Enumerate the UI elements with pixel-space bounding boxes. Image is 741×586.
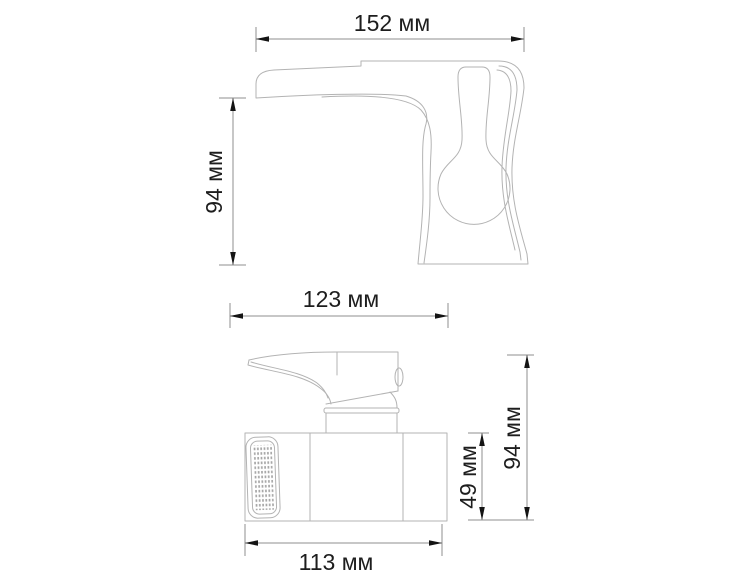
dim-side-height-label: 94 мм: [201, 150, 227, 214]
dim-front-body-height-label: 49 мм: [455, 445, 481, 509]
side-view-front-inner-line: [322, 96, 431, 263]
dim-front-overall-height-label: 94 мм: [499, 406, 525, 470]
front-view-lever-top-edge: [249, 352, 337, 360]
front-view: [245, 352, 447, 521]
front-view-housing-side-cap: [395, 368, 403, 386]
front-view-housing-base-curve: [390, 392, 397, 408]
dim-front-body-height: 49 мм: [455, 433, 489, 520]
dim-side-width-label: 152 мм: [354, 10, 430, 36]
dim-front-base-width-label: 113 мм: [299, 549, 374, 575]
dim-side-height: 94 мм: [201, 98, 246, 265]
front-view-housing-top-right: [337, 352, 398, 391]
dim-side-width: 152 мм: [256, 10, 524, 52]
faucet-dimension-drawing: 152 мм 94 мм 123 мм 49 мм 94 мм: [0, 0, 741, 586]
front-view-housing-bottom-edge: [326, 391, 398, 404]
side-view: [256, 61, 528, 264]
front-view-flange: [324, 408, 399, 413]
side-view-body-outline: [256, 61, 528, 264]
front-view-lever-inner-edge: [251, 362, 328, 398]
aerator: [246, 436, 281, 518]
dimensions: 152 мм 94 мм 123 мм 49 мм 94 мм: [201, 10, 534, 575]
dim-front-base-width: 113 мм: [245, 524, 442, 575]
drawing-canvas: 152 мм 94 мм 123 мм 49 мм 94 мм: [0, 0, 741, 586]
front-view-lever-underside: [248, 360, 331, 404]
dim-front-depth: 123 мм: [230, 286, 448, 328]
aerator-mesh-grid: [253, 445, 274, 511]
dim-front-depth-label: 123 мм: [303, 286, 379, 312]
side-view-handle-outline: [438, 67, 510, 224]
